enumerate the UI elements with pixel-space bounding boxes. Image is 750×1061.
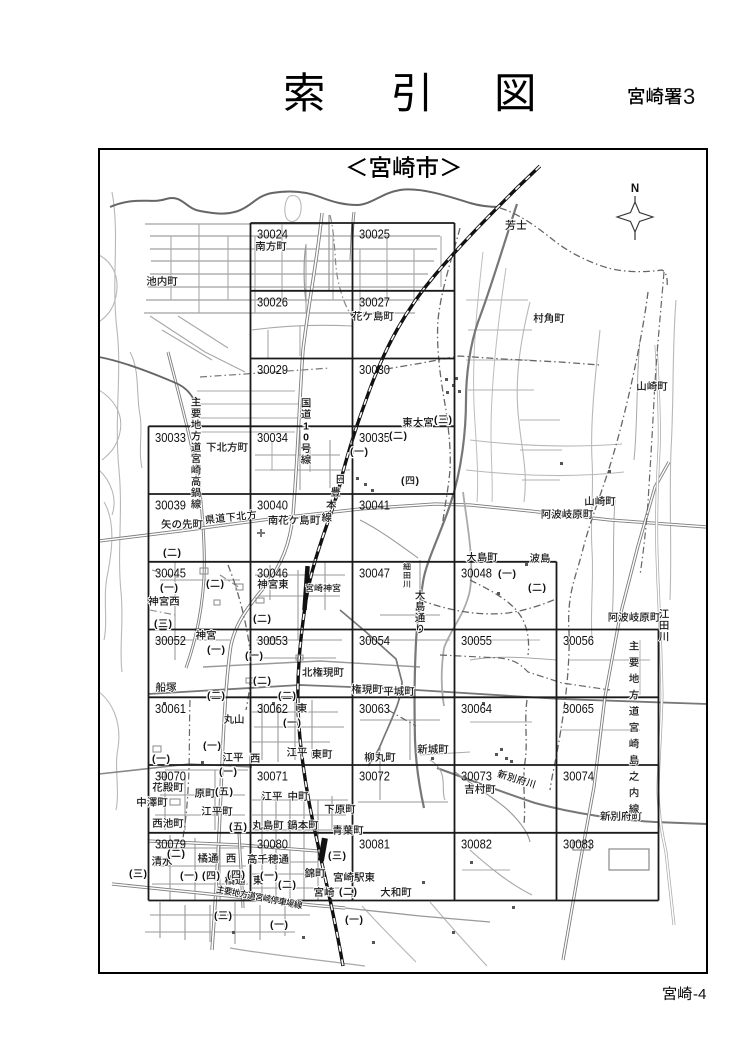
svg-text:): ) (542, 582, 546, 594)
svg-text:30071: 30071 (257, 769, 288, 784)
svg-text:30039: 30039 (155, 498, 186, 513)
svg-text:30055: 30055 (461, 633, 492, 648)
svg-text:30082: 30082 (461, 836, 492, 851)
svg-text:30046: 30046 (257, 565, 288, 580)
svg-text:30040: 30040 (257, 498, 288, 513)
svg-text:): ) (267, 613, 271, 625)
svg-text:(: ( (253, 613, 257, 625)
svg-text:30048: 30048 (461, 565, 492, 580)
svg-text:(: ( (154, 618, 158, 630)
svg-text:): ) (168, 618, 172, 630)
svg-text:): ) (221, 644, 225, 656)
svg-text:): ) (194, 870, 198, 882)
svg-text:): ) (241, 869, 245, 881)
svg-text:30063: 30063 (359, 701, 390, 716)
svg-text:(: ( (260, 870, 264, 882)
svg-text:(: ( (245, 650, 249, 662)
svg-text:(: ( (339, 886, 343, 898)
svg-text:(: ( (215, 786, 219, 798)
svg-text:): ) (259, 650, 263, 662)
svg-text:(: ( (219, 766, 223, 778)
svg-text:): ) (220, 578, 224, 590)
svg-text:): ) (342, 850, 346, 862)
svg-text:(: ( (434, 414, 438, 426)
svg-text:3: 3 (683, 84, 695, 109)
svg-text:30025: 30025 (359, 227, 390, 242)
svg-text:30083: 30083 (563, 836, 594, 851)
svg-text:30027: 30027 (359, 294, 390, 309)
svg-text:(: ( (270, 919, 274, 931)
svg-text:30064: 30064 (461, 701, 492, 716)
svg-text:30056: 30056 (563, 633, 594, 648)
svg-text:(: ( (389, 430, 393, 442)
svg-text:(: ( (214, 910, 218, 922)
svg-text:0: 0 (303, 432, 309, 444)
svg-text:(: ( (345, 914, 349, 926)
svg-text:(: ( (328, 850, 332, 862)
svg-text:): ) (292, 690, 296, 702)
svg-text:(: ( (278, 879, 282, 891)
svg-text:): ) (512, 568, 516, 580)
svg-text:): ) (221, 690, 225, 702)
svg-text:): ) (267, 675, 271, 687)
svg-text:): ) (233, 766, 237, 778)
svg-text:): ) (166, 753, 170, 765)
svg-text:30047: 30047 (359, 565, 390, 580)
svg-text:30065: 30065 (563, 701, 594, 716)
svg-text:30072: 30072 (359, 769, 390, 784)
svg-text:): ) (174, 582, 178, 594)
svg-text:(: ( (253, 675, 257, 687)
svg-text:(: ( (227, 869, 231, 881)
svg-text:(: ( (163, 547, 167, 559)
svg-text:): ) (364, 446, 368, 458)
svg-text:(: ( (207, 644, 211, 656)
svg-text:(: ( (528, 582, 532, 594)
svg-text:): ) (229, 786, 233, 798)
svg-text:30074: 30074 (563, 769, 594, 784)
svg-text:(: ( (203, 740, 207, 752)
svg-text:(: ( (229, 821, 233, 833)
svg-text:(: ( (498, 568, 502, 580)
svg-text:30054: 30054 (359, 633, 390, 648)
svg-text:30034: 30034 (257, 430, 288, 445)
svg-text:30033: 30033 (155, 430, 186, 445)
svg-text:30073: 30073 (461, 769, 492, 784)
svg-text:): ) (243, 821, 247, 833)
svg-text:): ) (216, 870, 220, 882)
svg-text:(: ( (202, 870, 206, 882)
svg-text:): ) (143, 868, 147, 880)
svg-text:(: ( (160, 582, 164, 594)
svg-text:-4: -4 (693, 986, 707, 1003)
svg-text:30061: 30061 (155, 701, 186, 716)
svg-text:): ) (292, 879, 296, 891)
svg-text:(: ( (129, 868, 133, 880)
svg-text:30024: 30024 (257, 227, 288, 242)
svg-text:): ) (284, 919, 288, 931)
svg-text:): ) (359, 914, 363, 926)
svg-text:(: ( (278, 690, 282, 702)
svg-text:(: ( (152, 753, 156, 765)
svg-text:(: ( (350, 446, 354, 458)
svg-text:(: ( (401, 475, 405, 487)
svg-text:): ) (415, 475, 419, 487)
svg-text:): ) (403, 430, 407, 442)
svg-text:): ) (297, 717, 301, 729)
svg-text:30081: 30081 (359, 836, 390, 851)
svg-text:(: ( (180, 870, 184, 882)
svg-text:(: ( (167, 848, 171, 860)
svg-text:): ) (177, 547, 181, 559)
svg-text:N: N (631, 183, 639, 195)
svg-text:30045: 30045 (155, 565, 186, 580)
svg-text:1: 1 (303, 420, 309, 432)
svg-text:30029: 30029 (257, 362, 288, 377)
svg-text:30062: 30062 (257, 701, 288, 716)
svg-text:30041: 30041 (359, 498, 390, 513)
svg-text:30026: 30026 (257, 294, 288, 309)
svg-text:(: ( (206, 578, 210, 590)
svg-text:): ) (217, 740, 221, 752)
svg-text:(: ( (283, 717, 287, 729)
svg-text:30035: 30035 (359, 430, 390, 445)
svg-text:): ) (181, 848, 185, 860)
svg-text:30053: 30053 (257, 633, 288, 648)
svg-text:30030: 30030 (359, 362, 390, 377)
svg-text:(: ( (207, 690, 211, 702)
svg-text:): ) (228, 910, 232, 922)
svg-text:): ) (353, 886, 357, 898)
svg-text:): ) (448, 414, 452, 426)
svg-text:30080: 30080 (257, 836, 288, 851)
svg-text:30052: 30052 (155, 633, 186, 648)
